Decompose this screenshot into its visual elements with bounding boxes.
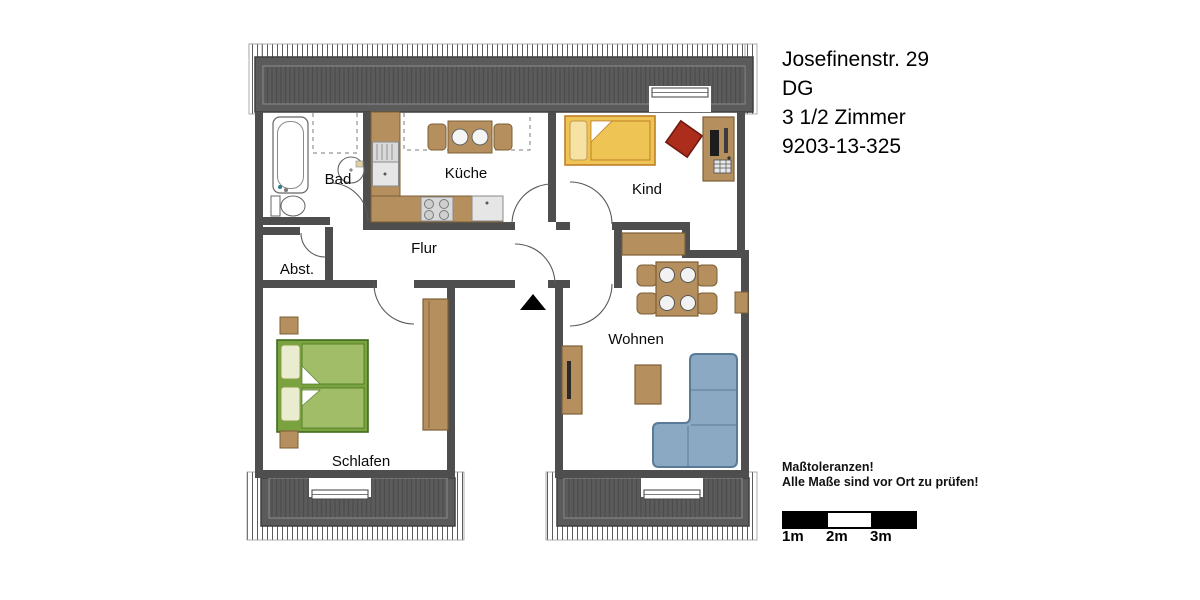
burner-4 (440, 211, 449, 220)
tolerance-note-line1: Maßtoleranzen! (782, 460, 979, 475)
nightstand-bottom (280, 431, 298, 448)
burner-3 (425, 211, 434, 220)
nightstand-top (280, 317, 298, 334)
dining-chair (637, 265, 657, 286)
title-address: Josefinenstr. 29 (782, 45, 929, 74)
dining-chair (697, 293, 717, 314)
dining-chair (637, 293, 657, 314)
plate (681, 268, 696, 283)
sofa-body (653, 354, 737, 467)
kitchen-chair-left (428, 124, 446, 150)
plate (452, 129, 468, 145)
sideboard (622, 233, 685, 255)
room-label-schlafen: Schlafen (332, 453, 390, 470)
wall-nook-right (614, 230, 622, 288)
floorplan-page: Bad Küche Kind Flur Abst. Wohnen Schlafe… (0, 0, 1200, 600)
kind-furniture (565, 116, 734, 181)
toilet-bowl (281, 196, 305, 216)
double-bed (277, 340, 368, 432)
desk-monitor (710, 130, 719, 156)
room-label-bad: Bad (325, 171, 352, 188)
bathtub-tap (284, 188, 288, 192)
scale-label-3m: 3m (870, 528, 892, 545)
bathtub-inner (278, 122, 304, 189)
wall-kueche-bottom (363, 222, 515, 230)
kitchen-fixtures (371, 112, 512, 222)
bathroom-fixtures (271, 117, 364, 216)
title-block: Josefinenstr. 29 DG 3 1/2 Zimmer 9203-13… (782, 45, 929, 161)
desk-speaker (724, 128, 728, 153)
wall-abst-right (325, 227, 333, 288)
slope-line-bad (313, 113, 357, 153)
drainer-body (373, 142, 399, 162)
door-arc-bad (330, 183, 368, 221)
door-arc-wohnen (570, 284, 612, 326)
burner-1 (425, 200, 434, 209)
wall-left-outer (255, 112, 263, 478)
scale-segment-2 (828, 513, 872, 527)
scale-segment-3 (871, 513, 915, 527)
room-label-wohnen: Wohnen (608, 331, 664, 348)
coffee-table (635, 365, 661, 404)
kind-desk (703, 117, 734, 181)
wall-wohnen-right (741, 250, 749, 478)
scale-label-2m: 2m (826, 528, 848, 545)
door-arc-abst (301, 233, 325, 257)
title-reference: 9203-13-325 (782, 132, 929, 161)
scale-labels: 1m 2m 3m (782, 528, 942, 546)
scale-segment-1 (784, 513, 828, 527)
wall-kind-right (737, 112, 745, 258)
tv-board-body (562, 346, 582, 414)
schlafen-furniture (277, 299, 448, 448)
door-arc-kueche (512, 184, 552, 224)
wall-flur-south-a (263, 280, 377, 288)
kind-chair (666, 121, 702, 157)
wall-flur-south-b (414, 280, 515, 288)
fringe-top (249, 44, 747, 58)
radiator (735, 292, 748, 313)
wall-kind-wohnen-step-h (682, 250, 749, 258)
wall-bad-bottom (255, 217, 330, 225)
wall-kueche-kind-divider (548, 112, 556, 222)
kitchen-worktop (472, 196, 503, 221)
bathtub-drain (278, 185, 282, 189)
kitchen-table-set (428, 121, 512, 153)
kitchen-stove (421, 197, 453, 221)
wohnen-furniture (562, 233, 748, 467)
wall-wohnen-bottom (556, 470, 749, 478)
tv-board (562, 346, 582, 414)
floor-plan: Bad Küche Kind Flur Abst. Wohnen Schlafe… (0, 0, 1200, 600)
bed-pillow-2 (281, 387, 300, 421)
scale-bar (782, 511, 917, 529)
kitchen-chair-right (494, 124, 512, 150)
wall-abst-top (255, 227, 300, 235)
room-label-kind: Kind (632, 181, 662, 198)
door-arc-entrance (515, 244, 555, 284)
plate (660, 268, 675, 283)
dining-set (637, 262, 717, 316)
room-label-abst: Abst. (280, 261, 314, 278)
room-label-flur: Flur (411, 240, 437, 257)
plate (472, 129, 488, 145)
bed-pillow-1 (281, 345, 300, 379)
door-arc-kind (570, 182, 612, 224)
desk-keyboard (714, 160, 731, 173)
wall-schlafen-bottom (255, 470, 455, 478)
dining-chair (697, 265, 717, 286)
title-floor: DG (782, 74, 929, 103)
plate (681, 296, 696, 311)
kitchen-drainer (373, 142, 399, 162)
kitchen-sink-drain (384, 173, 387, 176)
kind-bed-pillow (570, 121, 587, 160)
wardrobe (423, 299, 448, 430)
toilet-tank (271, 196, 280, 216)
room-label-kueche: Küche (445, 165, 488, 182)
burner-2 (440, 200, 449, 209)
door-arc-schlafen (374, 284, 414, 324)
desk-mouse (727, 156, 730, 159)
title-rooms-count: 3 1/2 Zimmer (782, 103, 929, 132)
entrance-arrow (520, 294, 546, 310)
keyboard-body (714, 160, 731, 173)
sink-tap (356, 161, 363, 167)
plate (660, 296, 675, 311)
sofa (653, 354, 737, 467)
wall-nook-top-b (612, 222, 690, 230)
kind-bed (565, 116, 655, 165)
worktop-dot (486, 202, 489, 205)
tolerance-note-line2: Alle Maße sind vor Ort zu prüfen! (782, 475, 979, 490)
tolerance-notes: Maßtoleranzen! Alle Maße sind vor Ort zu… (782, 460, 979, 490)
scale-label-1m: 1m (782, 528, 804, 545)
tv-screen (567, 361, 571, 399)
wall-nook-top-a (556, 222, 570, 230)
wardrobe-body (423, 299, 448, 430)
